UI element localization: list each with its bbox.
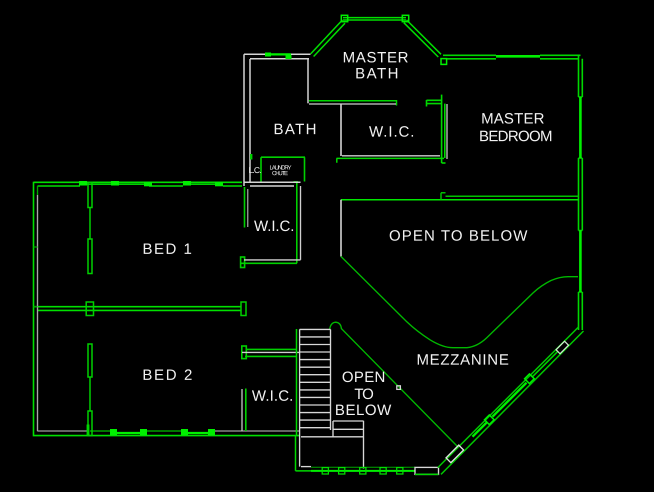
svg-text:BED 2: BED 2 <box>142 367 193 384</box>
svg-text:L.C.: L.C. <box>249 165 262 175</box>
svg-text:TO: TO <box>354 386 374 403</box>
svg-text:W.I.C.: W.I.C. <box>254 218 295 235</box>
svg-text:BATH: BATH <box>355 65 399 82</box>
svg-text:OPEN: OPEN <box>342 369 386 386</box>
svg-text:OPEN TO BELOW: OPEN TO BELOW <box>389 228 528 245</box>
svg-text:BELOW: BELOW <box>335 402 392 419</box>
svg-text:MASTER: MASTER <box>481 110 545 127</box>
svg-text:CHUTE: CHUTE <box>272 171 288 177</box>
svg-text:MASTER: MASTER <box>343 49 410 66</box>
svg-text:W.I.C.: W.I.C. <box>369 124 415 141</box>
svg-text:BED 1: BED 1 <box>142 241 192 258</box>
svg-text:MEZZANINE: MEZZANINE <box>416 352 509 369</box>
svg-text:BEDROOM: BEDROOM <box>479 128 553 145</box>
svg-text:BATH: BATH <box>274 121 318 138</box>
svg-text:W.I.C.: W.I.C. <box>252 388 294 405</box>
